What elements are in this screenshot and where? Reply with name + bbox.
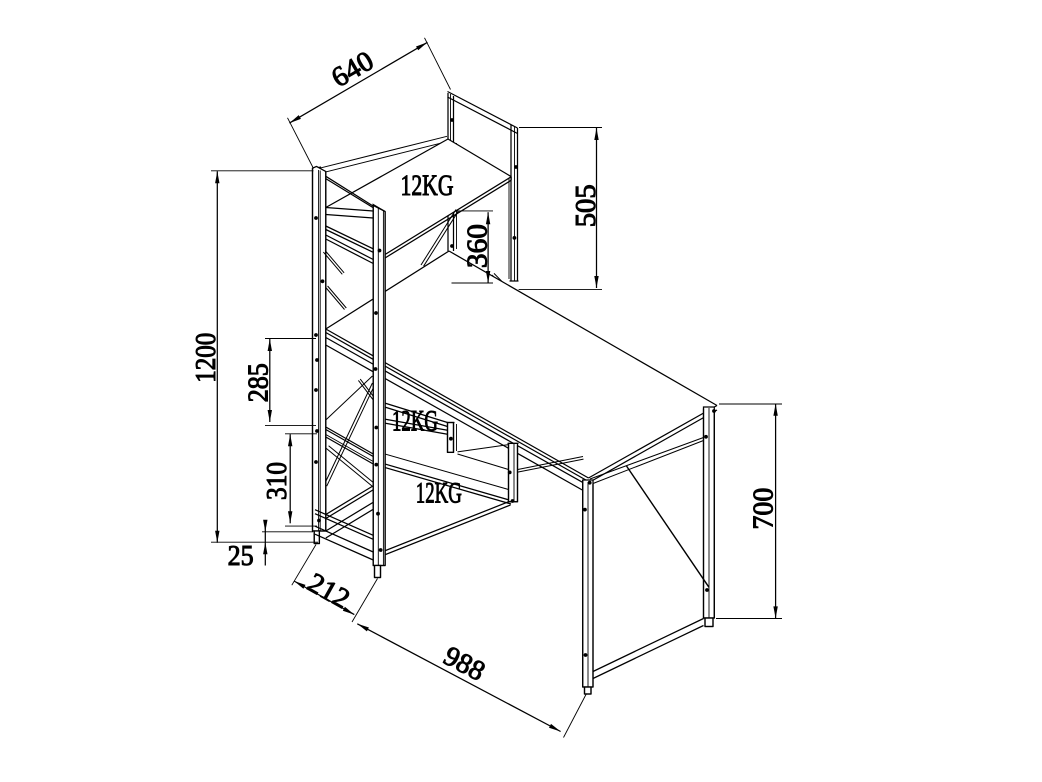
svg-text:12KG: 12KG (401, 169, 454, 202)
svg-text:1200: 1200 (191, 333, 222, 383)
svg-text:360: 360 (463, 224, 494, 268)
svg-text:700: 700 (749, 488, 780, 530)
svg-text:12KG: 12KG (416, 477, 462, 510)
svg-text:285: 285 (244, 363, 275, 402)
svg-text:505: 505 (571, 184, 602, 227)
svg-text:25: 25 (228, 541, 254, 572)
svg-text:310: 310 (262, 462, 293, 500)
svg-text:12KG: 12KG (392, 405, 438, 438)
